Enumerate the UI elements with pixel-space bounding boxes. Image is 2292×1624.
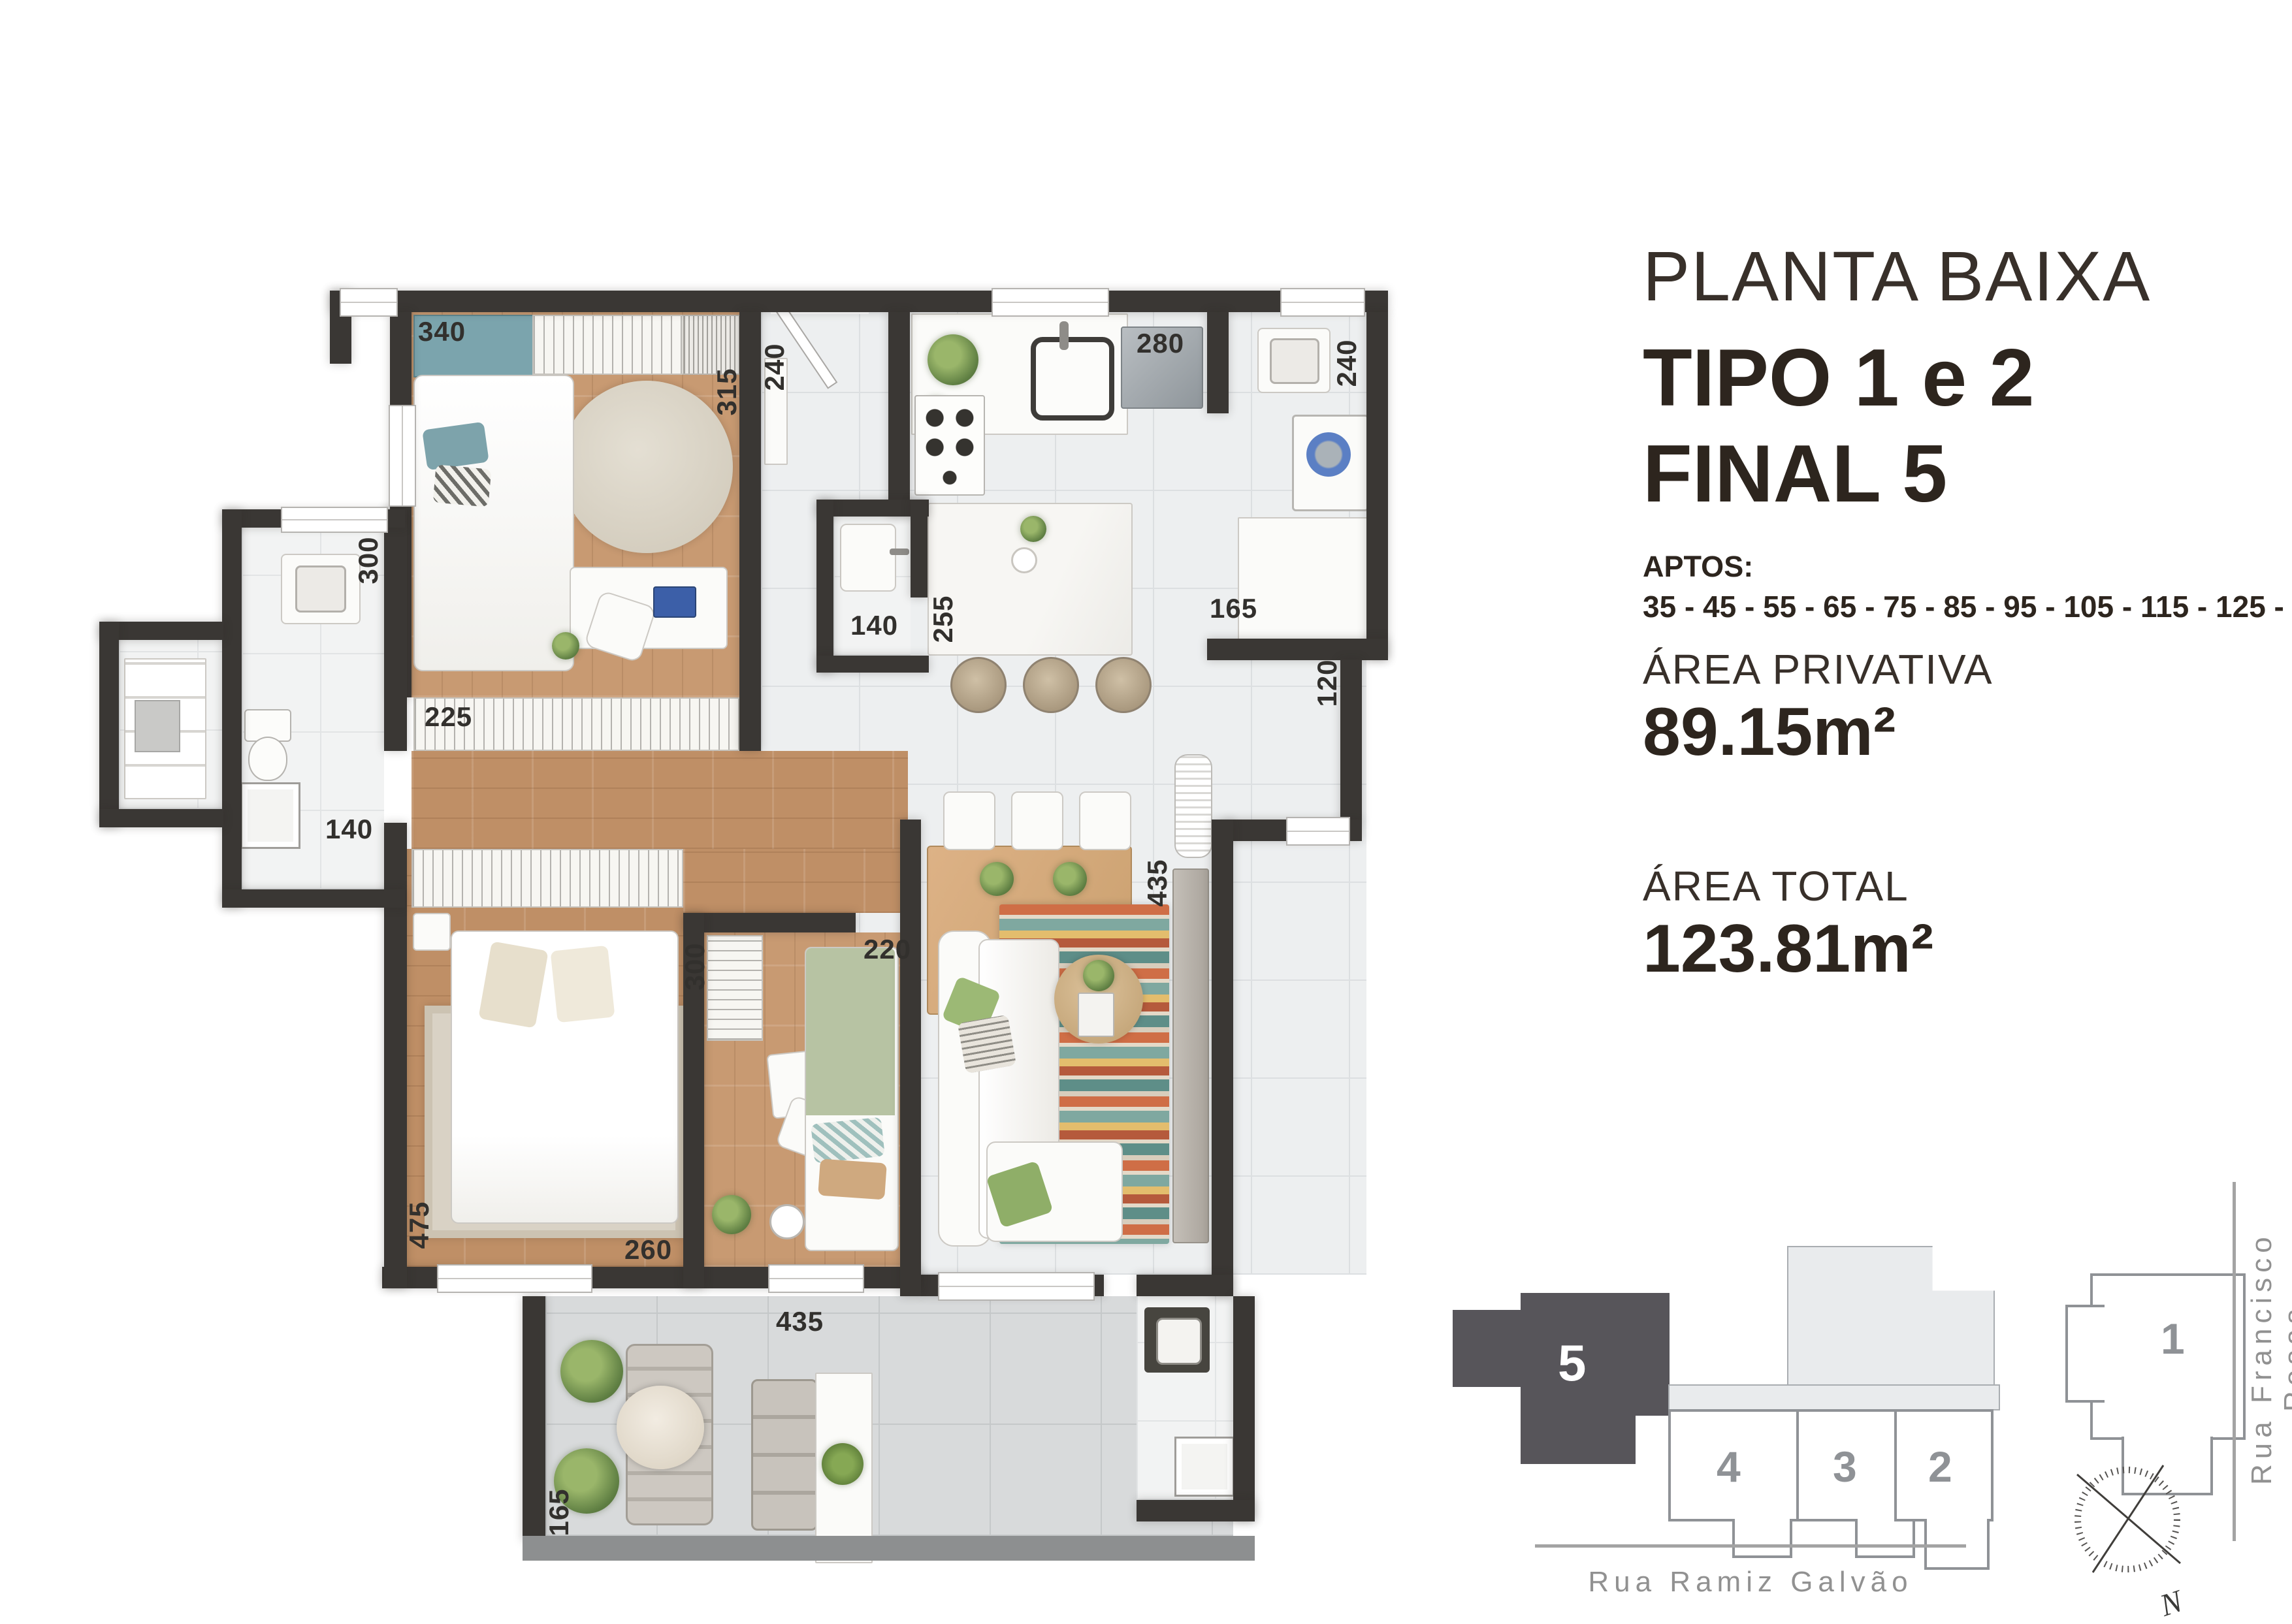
washing-machine-door — [1306, 432, 1351, 477]
area-privativa-value: 89.15m² — [1643, 693, 1896, 771]
keyplan-unit-2-label: 2 — [1928, 1442, 1952, 1491]
wall-balcony-left — [523, 1296, 545, 1541]
lavabo-sink — [840, 524, 896, 592]
master-wardrobe — [412, 849, 683, 908]
final-title: FINAL 5 — [1643, 428, 1947, 520]
window-living — [938, 1272, 1095, 1301]
wall-lavabo-bottom — [816, 656, 929, 673]
dining-chair-3 — [1079, 791, 1131, 850]
floorplan-sheet: { "info": { "title": "PLANTA BAIXA", "ty… — [0, 0, 2292, 1620]
dim-bedroom1-depth: 315 — [711, 368, 743, 415]
keyplan-unit-1-label: 1 — [2161, 1314, 2185, 1363]
wall-top — [330, 291, 1388, 312]
master-nightstand — [413, 913, 451, 951]
wall-balcony-parapet — [523, 1536, 1255, 1561]
window-right-nook — [1286, 817, 1350, 846]
bedroom1-pillow-striped — [433, 464, 492, 507]
bathroom2-shelf — [1144, 1379, 1210, 1434]
laundry-basin — [1270, 338, 1319, 384]
sideboard — [1172, 868, 1209, 1243]
dim-bedroom1-width: 340 — [418, 316, 466, 347]
dim-laundry-width: 165 — [1210, 593, 1257, 624]
keyplan-unit-3-foot — [1855, 1519, 1915, 1558]
balcony-bench — [751, 1379, 818, 1531]
floor-plan: 340 315 240 280 240 300 225 140 255 165 … — [0, 0, 1450, 1620]
bathroom2-shower — [1174, 1437, 1235, 1497]
dim-balcony-width: 435 — [776, 1306, 824, 1337]
bedroom1-laptop — [653, 586, 696, 618]
area-total-label: ÁREA TOTAL — [1643, 862, 1909, 910]
dim-master-depth: 475 — [404, 1201, 435, 1249]
nook-box — [135, 700, 180, 752]
dim-closet-width: 225 — [425, 701, 472, 733]
street-label-right: Rua Francisco Rosas — [2246, 1175, 2287, 1541]
bedroom1-pillow-teal — [422, 422, 489, 471]
window-bedroom3 — [768, 1264, 864, 1293]
dim-balcony-depth: 165 — [543, 1488, 575, 1536]
bedroom1-wardrobe-shelves — [683, 315, 741, 375]
wall-bedroom3-right — [900, 820, 921, 1296]
keyplan-unit-5 — [1521, 1293, 1670, 1416]
dim-master-width: 260 — [624, 1234, 672, 1266]
corridor-wood-floor — [412, 751, 908, 849]
island-stool-1 — [950, 657, 1007, 713]
bedroom3-green-blanket — [806, 948, 895, 1115]
dim-laundry-depth: 240 — [1331, 339, 1363, 387]
balcony-plant-1 — [560, 1340, 623, 1403]
wall-kitchen-left — [888, 312, 910, 516]
keyplan-unit-3-label: 3 — [1833, 1442, 1857, 1491]
dim-right-step: 120 — [1312, 659, 1343, 707]
island-bowl — [1011, 547, 1037, 573]
bedroom3-plant — [712, 1195, 751, 1234]
island-stool-3 — [1095, 657, 1152, 713]
wall-living-bottom-b — [1137, 1275, 1233, 1296]
island-plant — [1020, 516, 1046, 542]
window-kitchen — [992, 288, 1109, 317]
window-bathroom1 — [281, 507, 388, 533]
toilet-bowl — [248, 737, 287, 781]
wall-living-right — [1212, 820, 1233, 1296]
bedroom1-rug — [560, 381, 733, 553]
type-title: TIPO 1 e 2 — [1643, 332, 2035, 424]
bedroom3-wardrobe — [707, 935, 763, 1041]
bedroom1-wardrobe — [532, 315, 684, 375]
kitchen-sink — [1031, 337, 1114, 421]
wall-laundry-bottom — [1207, 639, 1388, 660]
dim-kitchen-width: 280 — [1137, 328, 1184, 359]
corridor-wood-floor2 — [683, 849, 908, 913]
dim-bathroom2-width: 140 — [325, 814, 373, 845]
page-title: PLANTA BAIXA — [1643, 235, 2151, 317]
dim-bathroom1-depth: 300 — [353, 536, 384, 584]
wall-right-outer — [1366, 312, 1388, 660]
area-privativa-label: ÁREA PRIVATIVA — [1643, 645, 1993, 693]
window-bedroom1-left — [389, 405, 416, 507]
dim-lavabo-width: 140 — [850, 610, 898, 641]
dim-island-depth: 255 — [928, 595, 959, 643]
street-label-bottom: Rua Ramiz Galvão — [1535, 1566, 1966, 1599]
kitchen-plant1 — [928, 334, 978, 385]
dim-bedroom3-depth: 300 — [679, 942, 711, 990]
island-stool-2 — [1023, 657, 1079, 713]
bedroom1-bed — [413, 375, 574, 671]
balcony-round-table — [617, 1386, 704, 1469]
coffee-table-books — [1078, 993, 1114, 1037]
dining-chair-1 — [943, 791, 995, 850]
compass — [2059, 1451, 2196, 1588]
aptos-numbers: 35 - 45 - 55 - 65 - 75 - 85 - 95 - 105 -… — [1643, 589, 2292, 624]
wall-bath-bottom — [222, 889, 405, 908]
wall-nook-bottom — [99, 809, 223, 827]
dim-living-width: 435 — [1142, 859, 1173, 906]
wall-bath-left — [222, 509, 242, 908]
ac-unit — [1174, 754, 1212, 858]
bedroom3-pillow-2 — [818, 1159, 887, 1200]
dining-plant-2 — [1053, 862, 1087, 896]
wall-nook-left — [99, 622, 119, 827]
area-total-value: 123.81m² — [1643, 910, 1933, 988]
wall-bathroom2-bottom — [1137, 1500, 1255, 1521]
window-bedroom1-top — [340, 288, 398, 317]
bedroom3-vase — [769, 1204, 805, 1239]
window-laundry — [1280, 288, 1365, 317]
street-line-right — [2233, 1182, 2236, 1541]
compass-rose-icon — [2059, 1451, 2196, 1588]
wall-laundry-divider — [1207, 312, 1229, 413]
dim-bedroom3-width: 220 — [864, 934, 911, 965]
wall-bath-right — [384, 509, 407, 751]
keyplan-unit-5-foot — [1521, 1414, 1636, 1464]
stove — [914, 395, 985, 496]
coffee-table-plant — [1083, 960, 1114, 991]
dim-hall-width: 240 — [759, 343, 790, 390]
wall-right-step — [1340, 660, 1362, 823]
lavabo-faucet — [890, 549, 909, 555]
dining-plant-1 — [980, 862, 1014, 896]
bathroom1-basin — [295, 565, 346, 613]
wall-lavabo-right — [911, 500, 928, 597]
keyplan-unit-5-tab — [1453, 1310, 1522, 1387]
shower-box — [240, 782, 300, 849]
keyplan-unit-1-tab — [2065, 1305, 2105, 1403]
keyplan-unit-4-foot — [1732, 1519, 1792, 1558]
laundry-counter — [1238, 517, 1370, 641]
keyplan-unit-4-label: 4 — [1717, 1442, 1741, 1491]
master-pillow-2 — [550, 946, 615, 1023]
keyplan-corridor — [1668, 1384, 2000, 1410]
street-line-bottom — [1535, 1544, 1966, 1548]
wall-bathroom2-right — [1233, 1296, 1255, 1521]
balcony-console-plant — [822, 1443, 864, 1485]
aptos-label: APTOS: — [1643, 550, 1753, 584]
bathroom2-basin — [1156, 1318, 1202, 1365]
wall-lavabo-left — [816, 500, 833, 673]
bedroom1-plant — [552, 632, 579, 660]
wall-bedroom3-top — [683, 913, 856, 932]
keyplan-unit-5-label: 5 — [1558, 1333, 1586, 1393]
window-master — [437, 1264, 592, 1293]
kitchen-faucet — [1059, 321, 1069, 350]
dining-chair-2 — [1011, 791, 1063, 850]
sofa-pillow-knit — [958, 1015, 1016, 1074]
compass-north-label: N — [2155, 1583, 2186, 1623]
keyplan-top-block — [1787, 1246, 1995, 1386]
bedroom3-pillow-1 — [811, 1117, 885, 1164]
keyplan: 5 4 3 2 1 Rua Ramiz Galvão Rua Francisco… — [1437, 1162, 2292, 1619]
